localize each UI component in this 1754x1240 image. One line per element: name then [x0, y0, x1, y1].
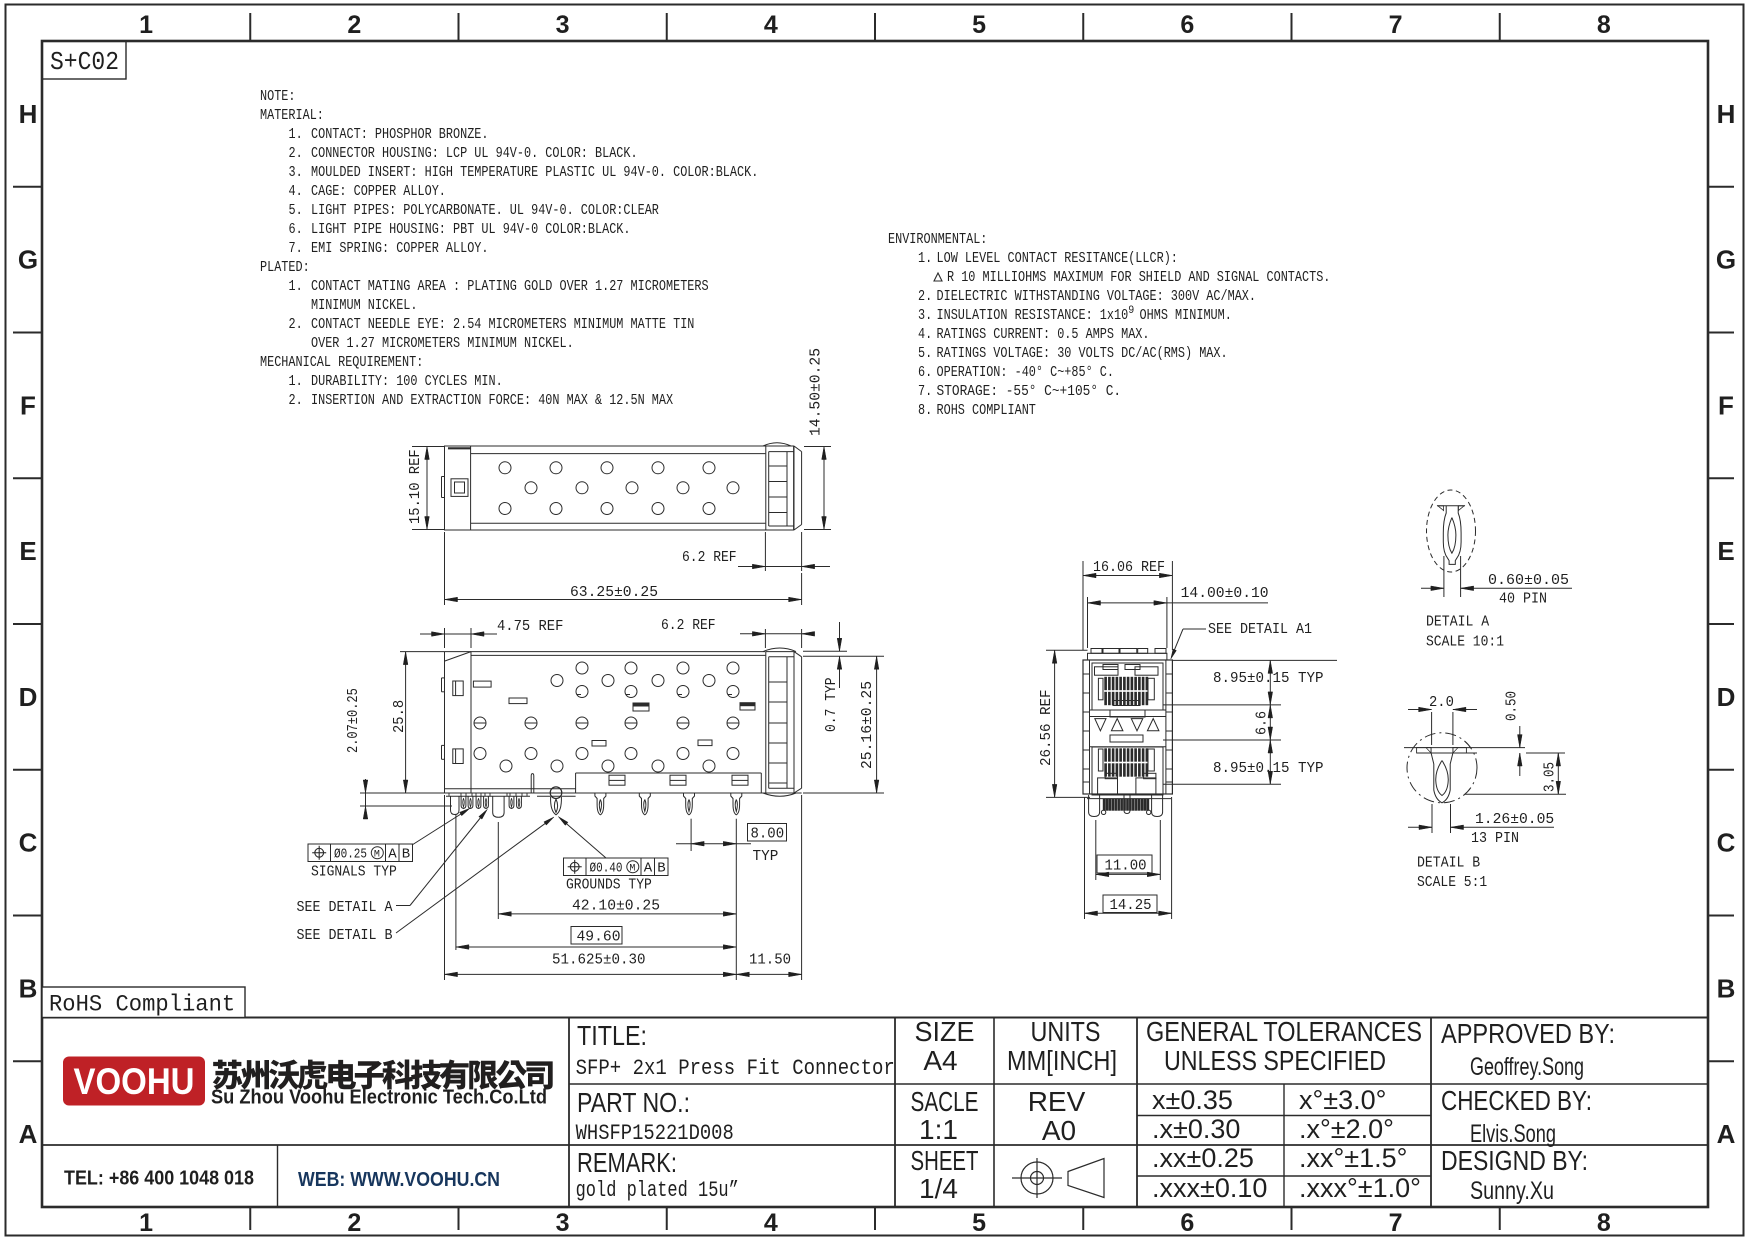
svg-text:0.50: 0.50 [1504, 691, 1521, 721]
svg-text:14.00±0.10: 14.00±0.10 [1181, 585, 1269, 602]
svg-text:A0: A0 [1042, 1115, 1076, 1146]
svg-text:GROUNDS TYP: GROUNDS TYP [566, 877, 652, 894]
svg-text:DETAIL B: DETAIL B [1417, 855, 1480, 872]
svg-text:2.: 2. [289, 392, 303, 409]
svg-text:0.7 TYP: 0.7 TYP [823, 677, 840, 732]
svg-text:B: B [1717, 973, 1736, 1003]
svg-text:SACLE: SACLE [911, 1086, 979, 1117]
svg-text:LOW LEVEL CONTACT RESITANCE(LL: LOW LEVEL CONTACT RESITANCE(LLCR): [937, 250, 1178, 267]
svg-text:6.: 6. [289, 221, 303, 238]
svg-text:RoHS Compliant: RoHS Compliant [49, 992, 235, 1018]
svg-text:Elvis.Song: Elvis.Song [1470, 1120, 1556, 1148]
svg-text:CAGE: COPPER ALLOY.: CAGE: COPPER ALLOY. [311, 183, 446, 200]
svg-text:M: M [374, 850, 380, 861]
svg-text:DESIGND BY:: DESIGND BY: [1441, 1145, 1588, 1176]
svg-text:G: G [1716, 245, 1736, 275]
svg-text:SCALE 10:1: SCALE 10:1 [1426, 634, 1504, 651]
svg-text:gold plated 15u”: gold plated 15u” [576, 1178, 739, 1203]
svg-text:Su Zhou Voohu Electronic Tech.: Su Zhou Voohu Electronic Tech.Co.Ltd [211, 1087, 547, 1109]
svg-text:2.: 2. [289, 316, 303, 333]
svg-text:5: 5 [972, 1209, 986, 1237]
svg-text:CONTACT MATING AREA : PLATING: CONTACT MATING AREA : PLATING GOLD OVER … [311, 278, 709, 295]
svg-text:CONTACT: PHOSPHOR BRONZE.: CONTACT: PHOSPHOR BRONZE. [311, 126, 489, 143]
svg-text:INSULATION RESISTANCE: 1x10: INSULATION RESISTANCE: 1x10 [937, 307, 1129, 324]
svg-text:6: 6 [1180, 11, 1194, 39]
svg-text:Ø0.25: Ø0.25 [334, 846, 367, 862]
svg-text:1.: 1. [289, 278, 303, 295]
svg-text:5.: 5. [289, 202, 303, 219]
svg-text:7: 7 [1389, 11, 1403, 39]
svg-text:A: A [644, 860, 653, 876]
svg-text:SHEET: SHEET [911, 1145, 979, 1176]
svg-text:S+C02: S+C02 [50, 47, 119, 77]
svg-text:.xx±0.25: .xx±0.25 [1152, 1143, 1254, 1173]
svg-text:51.625±0.30: 51.625±0.30 [552, 952, 646, 969]
svg-text:7.: 7. [289, 240, 303, 257]
svg-text:7: 7 [1389, 1209, 1403, 1237]
svg-text:SIGNALS TYP: SIGNALS TYP [311, 864, 397, 881]
svg-text:D: D [1717, 682, 1736, 712]
svg-text:UNLESS SPECIFIED: UNLESS SPECIFIED [1164, 1045, 1386, 1076]
svg-text:A4: A4 [923, 1045, 957, 1076]
svg-text:TITLE:: TITLE: [577, 1020, 647, 1051]
svg-text:Ø0.40: Ø0.40 [590, 860, 623, 876]
svg-text:.x°±2.0°: .x°±2.0° [1299, 1114, 1394, 1144]
svg-text:REMARK:: REMARK: [577, 1147, 677, 1178]
svg-text:LIGHT PIPES: POLYCARBONATE. UL: LIGHT PIPES: POLYCARBONATE. UL 94V-0. CO… [311, 202, 659, 219]
svg-text:OHMS MINIMUM.: OHMS MINIMUM. [1140, 307, 1232, 324]
svg-text:TEL: +86 400 1048 018: TEL: +86 400 1048 018 [64, 1168, 254, 1190]
svg-text:6.6: 6.6 [1254, 711, 1271, 735]
svg-text:B: B [402, 846, 410, 862]
svg-text:15.10 REF: 15.10 REF [407, 449, 424, 524]
svg-text:C: C [1717, 828, 1736, 858]
svg-text:INSERTION AND EXTRACTION FORCE: INSERTION AND EXTRACTION FORCE: 40N MAX … [311, 392, 673, 409]
svg-text:C: C [19, 828, 38, 858]
svg-text:CONNECTOR HOUSING: LCP UL 94V-: CONNECTOR HOUSING: LCP UL 94V-0. COLOR: … [311, 145, 638, 162]
svg-text:8.00: 8.00 [751, 826, 785, 843]
svg-text:8.95±0.15 TYP: 8.95±0.15 TYP [1213, 760, 1324, 777]
svg-text:.xxx±0.10: .xxx±0.10 [1152, 1173, 1267, 1203]
svg-text:8: 8 [1597, 1209, 1611, 1237]
svg-text:R 10 MILLIOHMS MAXIMUM FOR SHI: R 10 MILLIOHMS MAXIMUM FOR SHIELD AND SI… [947, 269, 1330, 286]
svg-text:3.: 3. [289, 164, 303, 181]
svg-text:H: H [19, 99, 38, 129]
svg-text:8.: 8. [918, 402, 932, 419]
svg-text:2.: 2. [918, 288, 932, 305]
svg-text:RATINGS VOLTAGE: 30 VOLTS DC/A: RATINGS VOLTAGE: 30 VOLTS DC/AC(RMS) MAX… [937, 345, 1228, 362]
svg-text:.xxx°±1.0°: .xxx°±1.0° [1299, 1173, 1421, 1203]
svg-text:D: D [19, 682, 38, 712]
svg-text:3: 3 [556, 11, 570, 39]
svg-text:2.07±0.25: 2.07±0.25 [345, 688, 362, 753]
svg-text:16.06 REF: 16.06 REF [1093, 559, 1165, 576]
svg-text:SIZE: SIZE [915, 1016, 975, 1047]
svg-text:MM[INCH]: MM[INCH] [1007, 1045, 1117, 1076]
svg-text:OVER 1.27 MICROMETERS MINIMUM: OVER 1.27 MICROMETERS MINIMUM NICKEL. [311, 335, 574, 352]
svg-text:11.50: 11.50 [749, 952, 791, 969]
svg-text:E: E [19, 536, 36, 566]
svg-text:1.: 1. [289, 373, 303, 390]
svg-text:SEE DETAIL A1: SEE DETAIL A1 [1208, 621, 1312, 638]
svg-text:G: G [18, 245, 38, 275]
svg-text:GENERAL TOLERANCES: GENERAL TOLERANCES [1146, 1016, 1422, 1047]
svg-text:Geoffrey.Song: Geoffrey.Song [1470, 1053, 1584, 1081]
svg-text:.xx°±1.5°: .xx°±1.5° [1299, 1143, 1407, 1173]
svg-text:TYP: TYP [753, 848, 779, 865]
svg-text:40 PIN: 40 PIN [1499, 591, 1547, 608]
svg-text:UNITS: UNITS [1031, 1016, 1101, 1047]
svg-text:ENVIRONMENTAL:: ENVIRONMENTAL: [888, 231, 987, 248]
svg-text:2.0: 2.0 [1429, 694, 1454, 711]
svg-text:4: 4 [764, 1209, 778, 1237]
svg-text:1.26±0.05: 1.26±0.05 [1475, 811, 1554, 828]
svg-text:3: 3 [556, 1209, 570, 1237]
svg-text:5: 5 [972, 11, 986, 39]
svg-text:MOULDED INSERT: HIGH TEMPERATU: MOULDED INSERT: HIGH TEMPERATURE PLASTIC… [311, 164, 758, 181]
svg-text:1: 1 [139, 1209, 153, 1237]
svg-text:MATERIAL:: MATERIAL: [260, 107, 324, 124]
svg-text:NOTE:: NOTE: [260, 88, 296, 105]
svg-text:E: E [1717, 536, 1734, 566]
svg-text:25.16±0.25: 25.16±0.25 [859, 681, 876, 769]
svg-text:1.: 1. [918, 250, 932, 267]
svg-text:x±0.35: x±0.35 [1152, 1085, 1233, 1115]
svg-text:H: H [1717, 99, 1736, 129]
svg-text:SCALE 5:1: SCALE 5:1 [1417, 874, 1487, 891]
svg-text:STORAGE: -55° C~+105° C.: STORAGE: -55° C~+105° C. [937, 383, 1122, 400]
svg-text:1:1: 1:1 [919, 1114, 958, 1145]
svg-text:CHECKED BY:: CHECKED BY: [1441, 1085, 1592, 1116]
svg-text:WEB: WWW.VOOHU.CN: WEB: WWW.VOOHU.CN [298, 1169, 500, 1191]
svg-text:PLATED:: PLATED: [260, 259, 310, 276]
svg-text:SEE DETAIL A: SEE DETAIL A [297, 899, 393, 916]
svg-text:1: 1 [139, 11, 153, 39]
svg-text:7.: 7. [918, 383, 932, 400]
svg-text:42.10±0.25: 42.10±0.25 [572, 898, 660, 915]
svg-text:14.50±0.25: 14.50±0.25 [808, 348, 825, 436]
svg-text:6.2 REF: 6.2 REF [682, 549, 737, 566]
svg-text:4.: 4. [289, 183, 303, 200]
svg-text:F: F [1718, 390, 1734, 420]
svg-text:OPERATION: -40° C~+85° C.: OPERATION: -40° C~+85° C. [937, 364, 1115, 381]
svg-text:11.00: 11.00 [1105, 858, 1147, 875]
svg-text:26.56 REF: 26.56 REF [1038, 690, 1055, 767]
svg-text:2.: 2. [289, 145, 303, 162]
svg-text:9: 9 [1128, 305, 1134, 317]
svg-text:F: F [20, 390, 36, 420]
svg-text:REV: REV [1028, 1086, 1086, 1117]
svg-text:6.2 REF: 6.2 REF [661, 617, 716, 634]
svg-text:8: 8 [1597, 11, 1611, 39]
svg-text:PART NO.:: PART NO.: [577, 1087, 690, 1118]
svg-text:6: 6 [1180, 1209, 1194, 1237]
svg-text:5.: 5. [918, 345, 932, 362]
svg-text:6.: 6. [918, 364, 932, 381]
svg-text:49.60: 49.60 [577, 929, 621, 946]
svg-text:SFP+ 2x1 Press Fit Connector: SFP+ 2x1 Press Fit Connector [576, 1056, 895, 1081]
svg-text:1/4: 1/4 [919, 1173, 958, 1204]
svg-text:DETAIL A: DETAIL A [1426, 614, 1489, 631]
svg-text:B: B [657, 860, 665, 876]
svg-text:EMI SPRING: COPPER ALLOY.: EMI SPRING: COPPER ALLOY. [311, 240, 489, 257]
svg-text:SEE DETAIL B: SEE DETAIL B [297, 927, 393, 944]
svg-text:4.: 4. [918, 326, 932, 343]
svg-text:.x±0.30: .x±0.30 [1152, 1114, 1240, 1144]
svg-text:APPROVED BY:: APPROVED BY: [1441, 1018, 1615, 1049]
svg-text:A: A [388, 846, 397, 862]
svg-text:VOOHU: VOOHU [74, 1061, 195, 1102]
svg-text:Sunny.Xu: Sunny.Xu [1470, 1177, 1554, 1205]
svg-text:0.60±0.05: 0.60±0.05 [1488, 572, 1569, 589]
svg-text:3.05: 3.05 [1542, 762, 1559, 792]
svg-text:x°±3.0°: x°±3.0° [1299, 1085, 1386, 1115]
svg-text:13 PIN: 13 PIN [1471, 830, 1519, 847]
svg-text:2: 2 [347, 11, 361, 39]
svg-text:DURABILITY: 100 CYCLES MIN.: DURABILITY: 100 CYCLES MIN. [311, 373, 503, 390]
svg-text:WHSFP15221D008: WHSFP15221D008 [576, 1121, 734, 1146]
svg-text:1.: 1. [289, 126, 303, 143]
svg-text:A: A [1717, 1119, 1736, 1149]
svg-text:3.: 3. [918, 307, 932, 324]
svg-text:RATINGS CURRENT: 0.5 AMPS MAX.: RATINGS CURRENT: 0.5 AMPS MAX. [937, 326, 1150, 343]
svg-text:63.25±0.25: 63.25±0.25 [570, 584, 658, 601]
svg-text:2: 2 [347, 1209, 361, 1237]
svg-text:M: M [629, 864, 635, 875]
svg-text:B: B [19, 973, 38, 1003]
svg-text:ROHS COMPLIANT: ROHS COMPLIANT [937, 402, 1036, 419]
svg-text:14.25: 14.25 [1110, 897, 1152, 914]
svg-text:A: A [19, 1119, 38, 1149]
svg-text:MINIMUM NICKEL.: MINIMUM NICKEL. [311, 297, 418, 314]
svg-text:LIGHT PIPE HOUSING: PBT UL 94V: LIGHT PIPE HOUSING: PBT UL 94V-0 COLOR:B… [311, 221, 631, 238]
svg-text:4.75 REF: 4.75 REF [497, 618, 563, 635]
svg-text:MECHANICAL REQUIREMENT:: MECHANICAL REQUIREMENT: [260, 354, 423, 371]
svg-text:DIELECTRIC WITHSTANDING VOLTAG: DIELECTRIC WITHSTANDING VOLTAGE: 300V AC… [937, 288, 1257, 305]
svg-text:4: 4 [764, 11, 778, 39]
svg-text:CONTACT NEEDLE EYE: 2.54 MICRO: CONTACT NEEDLE EYE: 2.54 MICROMETERS MIN… [311, 316, 694, 333]
